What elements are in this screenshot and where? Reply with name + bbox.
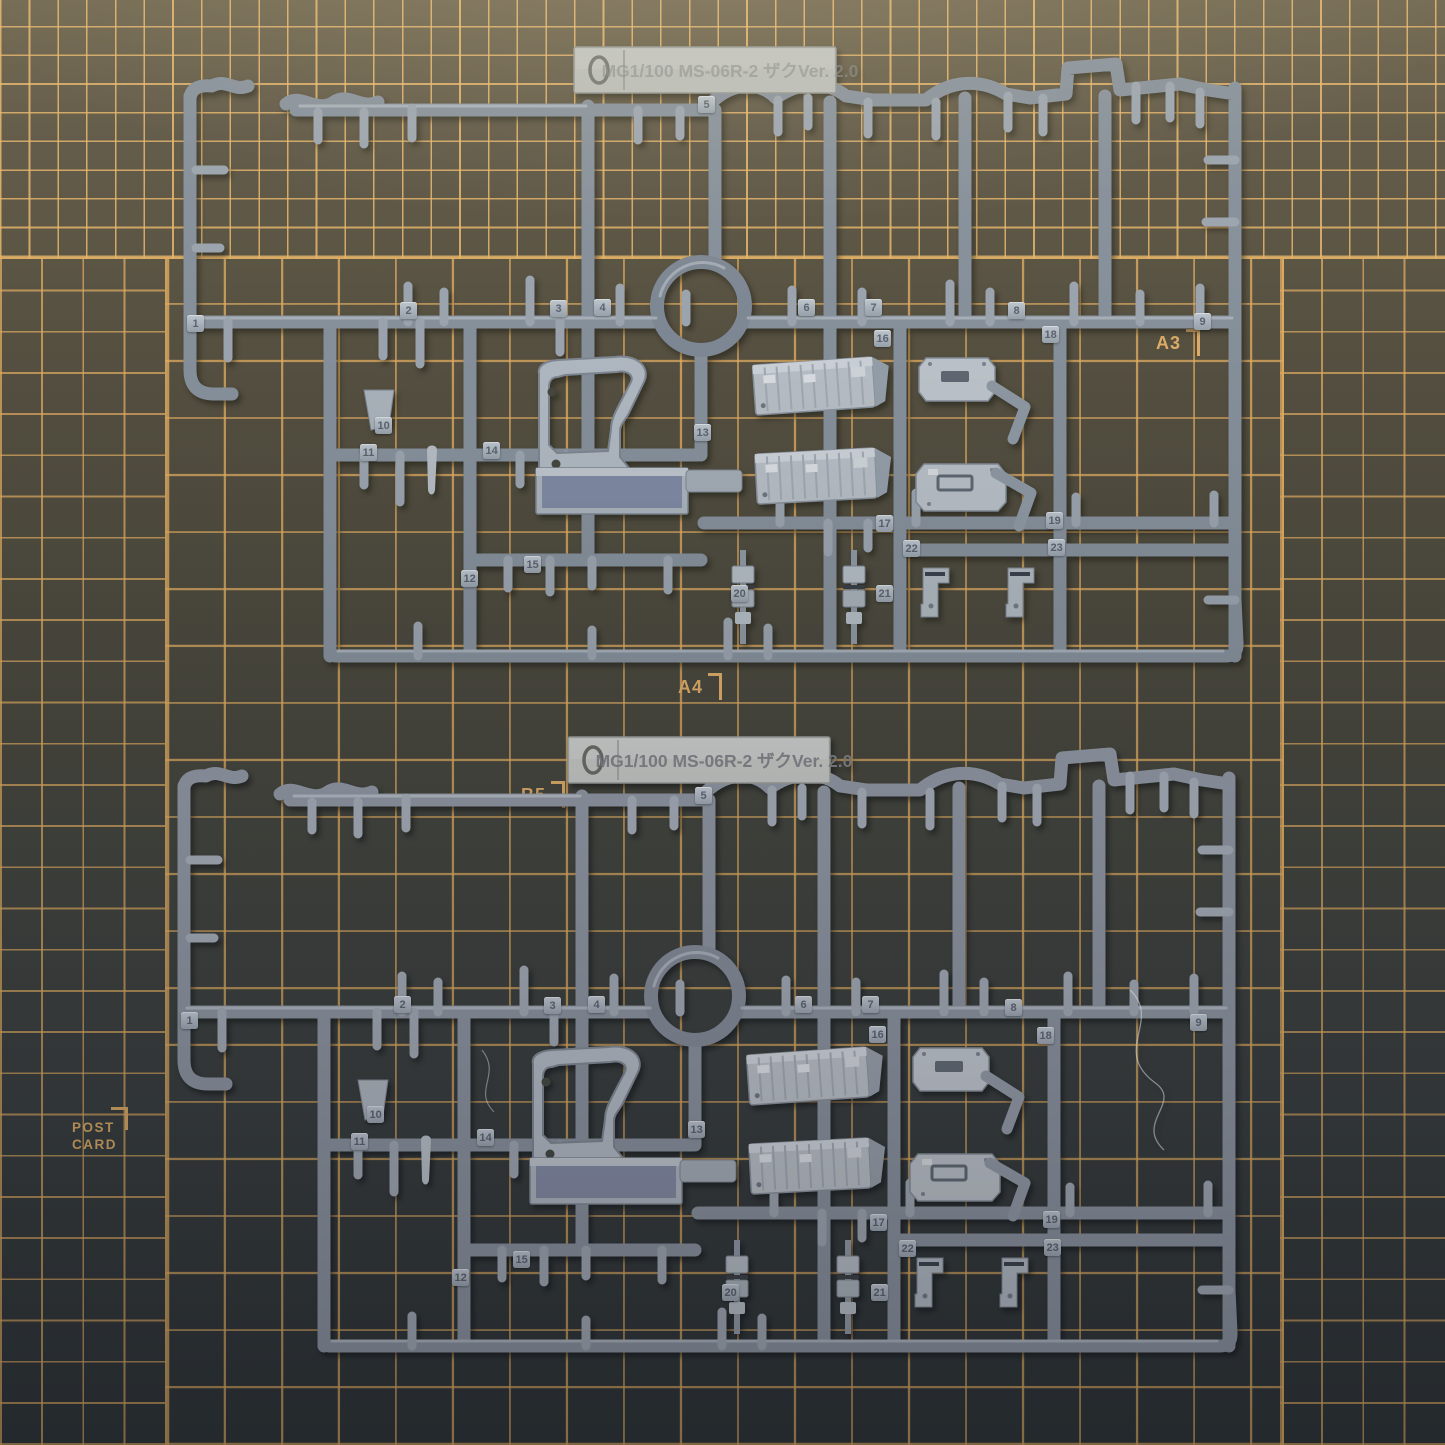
part-number-tag: 5	[695, 787, 712, 804]
part-number-tag: 23	[1048, 539, 1065, 556]
corner-mark-icon	[111, 1107, 128, 1130]
part-number-tag: 9	[1190, 1014, 1207, 1031]
part-number-tag: 6	[795, 996, 812, 1013]
part-number-tag: 18	[1042, 326, 1059, 343]
part-number-tag: 8	[1005, 999, 1022, 1016]
part-number-tag: 15	[524, 556, 541, 573]
part-number-tag: 3	[544, 997, 561, 1014]
part-number-tag: 19	[1046, 512, 1063, 529]
part-number-tag: 14	[483, 442, 500, 459]
part-number-tag: 14	[477, 1129, 494, 1146]
part-number-tag: 2	[400, 302, 417, 319]
nameplate-title: MG1/100 MS-06R-2 ザクVer. 2.0	[596, 751, 853, 771]
part-number-tag: 3	[550, 300, 567, 317]
nameplate-a: MG1/100 MS-06R-2 ザクVer. 2.0	[574, 47, 859, 93]
part-number-tag: 13	[688, 1121, 705, 1138]
part-number-tag: 22	[899, 1240, 916, 1257]
part-number-tag: 8	[1008, 302, 1025, 319]
part-number-tag: 6	[798, 299, 815, 316]
part-number-tag: 1	[187, 315, 204, 332]
sprue-runner-a: MG1/100 MS-06R-2 ザクVer. 2.0	[168, 40, 1248, 680]
part-number-tag: 4	[588, 996, 605, 1013]
part-number-tag: 19	[1043, 1211, 1060, 1228]
part-number-tag: 7	[865, 299, 882, 316]
part-number-tag: 22	[903, 540, 920, 557]
part-number-tag: 12	[461, 570, 478, 587]
part-number-tag: 17	[870, 1214, 887, 1231]
part-number-tag: 20	[731, 585, 748, 602]
part-number-tag: 1	[181, 1012, 198, 1029]
part-number-tag: 16	[869, 1026, 886, 1043]
part-number-tag: 21	[876, 585, 893, 602]
part-number-tag: 15	[513, 1251, 530, 1268]
part-number-tag: 10	[375, 417, 392, 434]
runner-geometry	[190, 64, 1237, 656]
part-number-tag: 2	[394, 996, 411, 1013]
nameplate-b: MG1/100 MS-06R-2 ザクVer. 2.0	[568, 737, 853, 783]
stray-fiber	[482, 1050, 494, 1112]
part-number-tag: 11	[351, 1133, 368, 1150]
part-number-tag: 11	[360, 444, 377, 461]
part-number-tag: 23	[1044, 1239, 1061, 1256]
part-number-tag: 7	[862, 996, 879, 1013]
part-number-tag: 12	[452, 1269, 469, 1286]
part-number-tag: 18	[1037, 1027, 1054, 1044]
part-number-tag: 20	[722, 1284, 739, 1301]
part-number-tag: 16	[874, 330, 891, 347]
photo-scene: A3 A4 B5 POST CARD	[0, 0, 1445, 1445]
cutting-mat-left-margin-grid	[0, 257, 165, 1445]
part-number-tag: 5	[698, 96, 715, 113]
nameplate-title: MG1/100 MS-06R-2 ザクVer. 2.0	[602, 61, 859, 81]
part-number-tag: 4	[594, 299, 611, 316]
part-number-tag: 17	[876, 515, 893, 532]
mat-size-label-a4: A4	[678, 678, 722, 700]
cutting-mat-right-margin-grid	[1280, 257, 1445, 1445]
part-number-tag: 13	[694, 424, 711, 441]
part-number-tag: 9	[1194, 313, 1211, 330]
sprue-runner-b: MG1/100 MS-06R-2 ザクVer. 2.0	[162, 730, 1242, 1370]
part-number-tag: 10	[367, 1106, 384, 1123]
runner-geometry	[184, 754, 1231, 1346]
mat-size-label-postcard: POST CARD	[72, 1120, 117, 1154]
part-number-tag: 21	[871, 1284, 888, 1301]
